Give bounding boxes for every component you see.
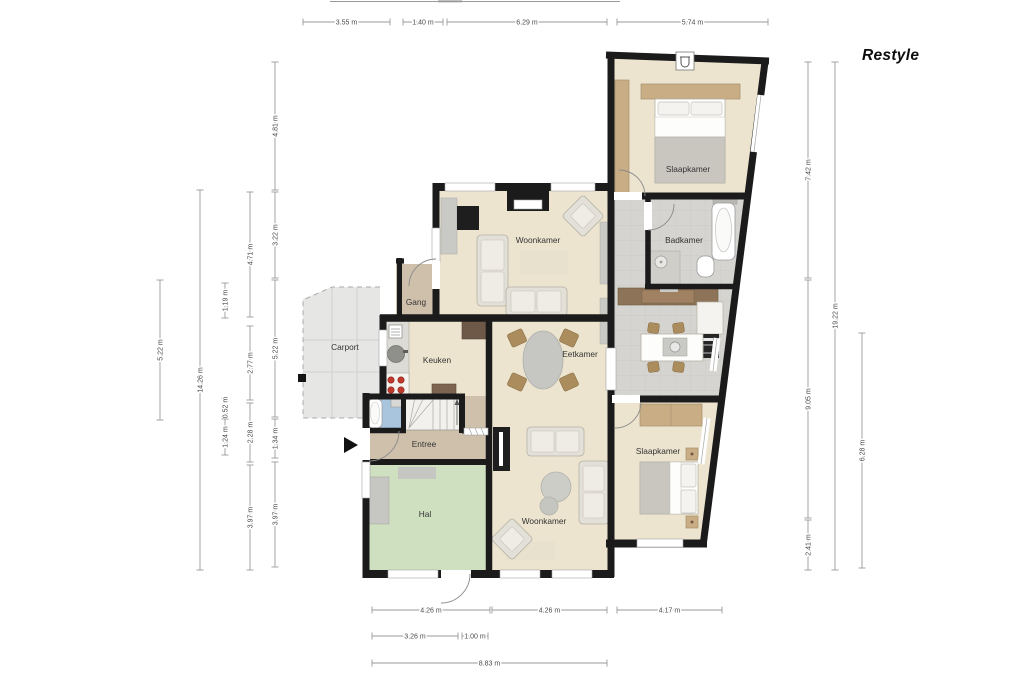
dimension: 9.05 m [805,280,813,518]
restyle-logo: Restyle [862,47,919,65]
floorplan-drawing: 3.55 m 1.40 m 6.29 m 5.74 m 5.22 m 14.26… [0,0,1024,683]
sink [388,346,405,363]
floorplan-page: 3.55 m 1.40 m 6.29 m 5.74 m 5.22 m 14.26… [0,0,1024,683]
dim-label: 9.05 m [805,388,812,410]
staircase [405,397,462,430]
room-label-carport: Carport [331,342,359,352]
dimension: 4.26 m [372,607,490,615]
dimension: 1.00 m [462,633,488,641]
dim-label: 3.97 m [272,504,279,526]
dimension: 4.17 m [617,607,722,615]
dimension: 5.22 m [272,280,280,417]
dim-label: 4.17 m [659,607,681,614]
dim-label: 5.74 m [682,19,704,26]
dimension: 3.26 m [372,633,458,641]
dim-label: 3.22 m [272,224,279,246]
room-label-entree: Entree [412,439,437,449]
dim-label: 5.22 m [157,339,164,361]
room-label-woonkamer-bottom: Woonkamer [522,516,567,526]
dimension: 14.26 m [197,190,205,570]
dim-label: 1.00 m [464,633,486,640]
dimension: 1.19 m [222,283,230,318]
toilet [697,256,714,277]
dim-label: 4.26 m [420,607,442,614]
room-label-gang: Gang [406,297,427,307]
dining-table [523,331,563,389]
dimension: 4.81 m [272,62,280,190]
bed-bottom [640,404,702,528]
dimension: 7.42 m [805,62,813,278]
room-label-slaapkamer-top: Slaapkamer [666,164,711,174]
room-label-badkamer: Badkamer [665,235,703,245]
dim-label: 1.19 m [222,290,229,312]
dim-label: 1.34 m [272,428,279,450]
tall-cabinet [697,302,723,334]
floor-corridor [612,196,648,290]
dimension: 2.41 m [805,520,813,570]
dimension: 2.77 m [247,326,255,400]
entrance-marker-icon [344,437,358,453]
dimension: 5.22 m [157,280,165,420]
dimension: 19.22 m [832,62,840,570]
dim-label: 8.83 m [479,660,501,667]
dim-label: 7.42 m [805,159,812,181]
carport-post [298,374,306,382]
dimension: 5.74 m [617,19,768,27]
dim-label: 2.77 m [247,352,254,374]
dimension: 1.40 m [403,19,443,27]
dim-label: 5.22 m [272,338,279,360]
dimension: 4.26 m [492,607,607,615]
ventilation-unit-icon [676,52,694,70]
dim-label: 0.52 m [222,397,229,419]
dim-label: 2.41 m [805,534,812,556]
dimension: 0.52 m [222,397,230,419]
dimension: 4.71 m [247,192,255,317]
dim-label: 19.22 m [832,303,839,328]
dim-label: 1.40 m [412,19,434,26]
room-label-eetkamer: Eetkamer [562,349,598,359]
room-label-woonkamer-top: Woonkamer [516,235,561,245]
room-label-keuken: Keuken [423,355,452,365]
piano [457,206,479,230]
dim-label: 2.28 m [247,422,254,444]
dimension: 6.29 m [447,19,607,27]
dim-label: 4.71 m [247,244,254,266]
dim-label: 3.26 m [404,633,426,640]
boiler-icon [389,325,402,338]
dimension: 1.24 m [222,419,230,455]
dim-label: 4.81 m [272,115,279,137]
dimension: 3.97 m [247,465,255,570]
dimension: 2.28 m [247,403,255,462]
dim-label: 14.26 m [197,367,204,392]
dim-label: 4.26 m [539,607,561,614]
dimension: 3.97 m [272,462,280,567]
dim-label: 3.55 m [336,19,358,26]
room-label-hal: Hal [419,509,432,519]
shower [650,251,680,284]
dimension: 8.83 m [372,660,607,668]
room-label-slaapkamer-bottom: Slaapkamer [636,446,681,456]
dimension: 1.34 m [272,419,280,458]
dimension: 3.22 m [272,192,280,278]
dim-label: 6.28 m [859,440,866,462]
dimension: 6.28 m [859,333,867,568]
dim-label: 6.29 m [516,19,538,26]
dim-label: 1.24 m [222,426,229,448]
dim-label: 3.97 m [247,507,254,529]
dimension: 3.55 m [303,19,390,27]
